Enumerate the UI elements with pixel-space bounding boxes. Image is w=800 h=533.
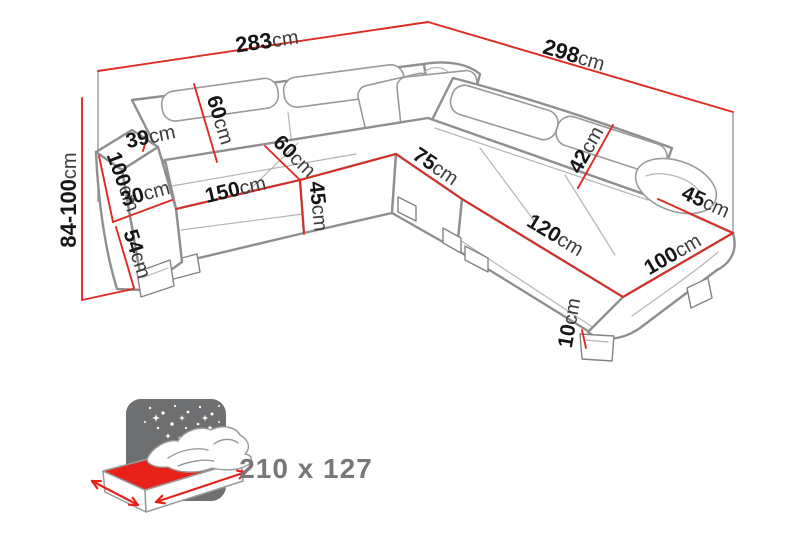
dim-label-height-adjustable: 84-100cm bbox=[56, 152, 81, 247]
corner-sofa-drawing bbox=[96, 62, 735, 361]
dim-line-floor bbox=[82, 289, 133, 300]
bed-icon bbox=[84, 398, 252, 512]
dim-label-total-depth-right: 298cm bbox=[540, 34, 608, 76]
sleeping-dimensions-label: 210 x 127 bbox=[239, 453, 373, 484]
sofa-dimension-diagram: 283cm 298cm 84-100cm 60cm 39cm 100cm 30c… bbox=[0, 0, 800, 533]
diagram-svg: 283cm 298cm 84-100cm 60cm 39cm 100cm 30c… bbox=[0, 0, 800, 533]
dim-label-total-width-top: 283cm bbox=[234, 24, 300, 58]
